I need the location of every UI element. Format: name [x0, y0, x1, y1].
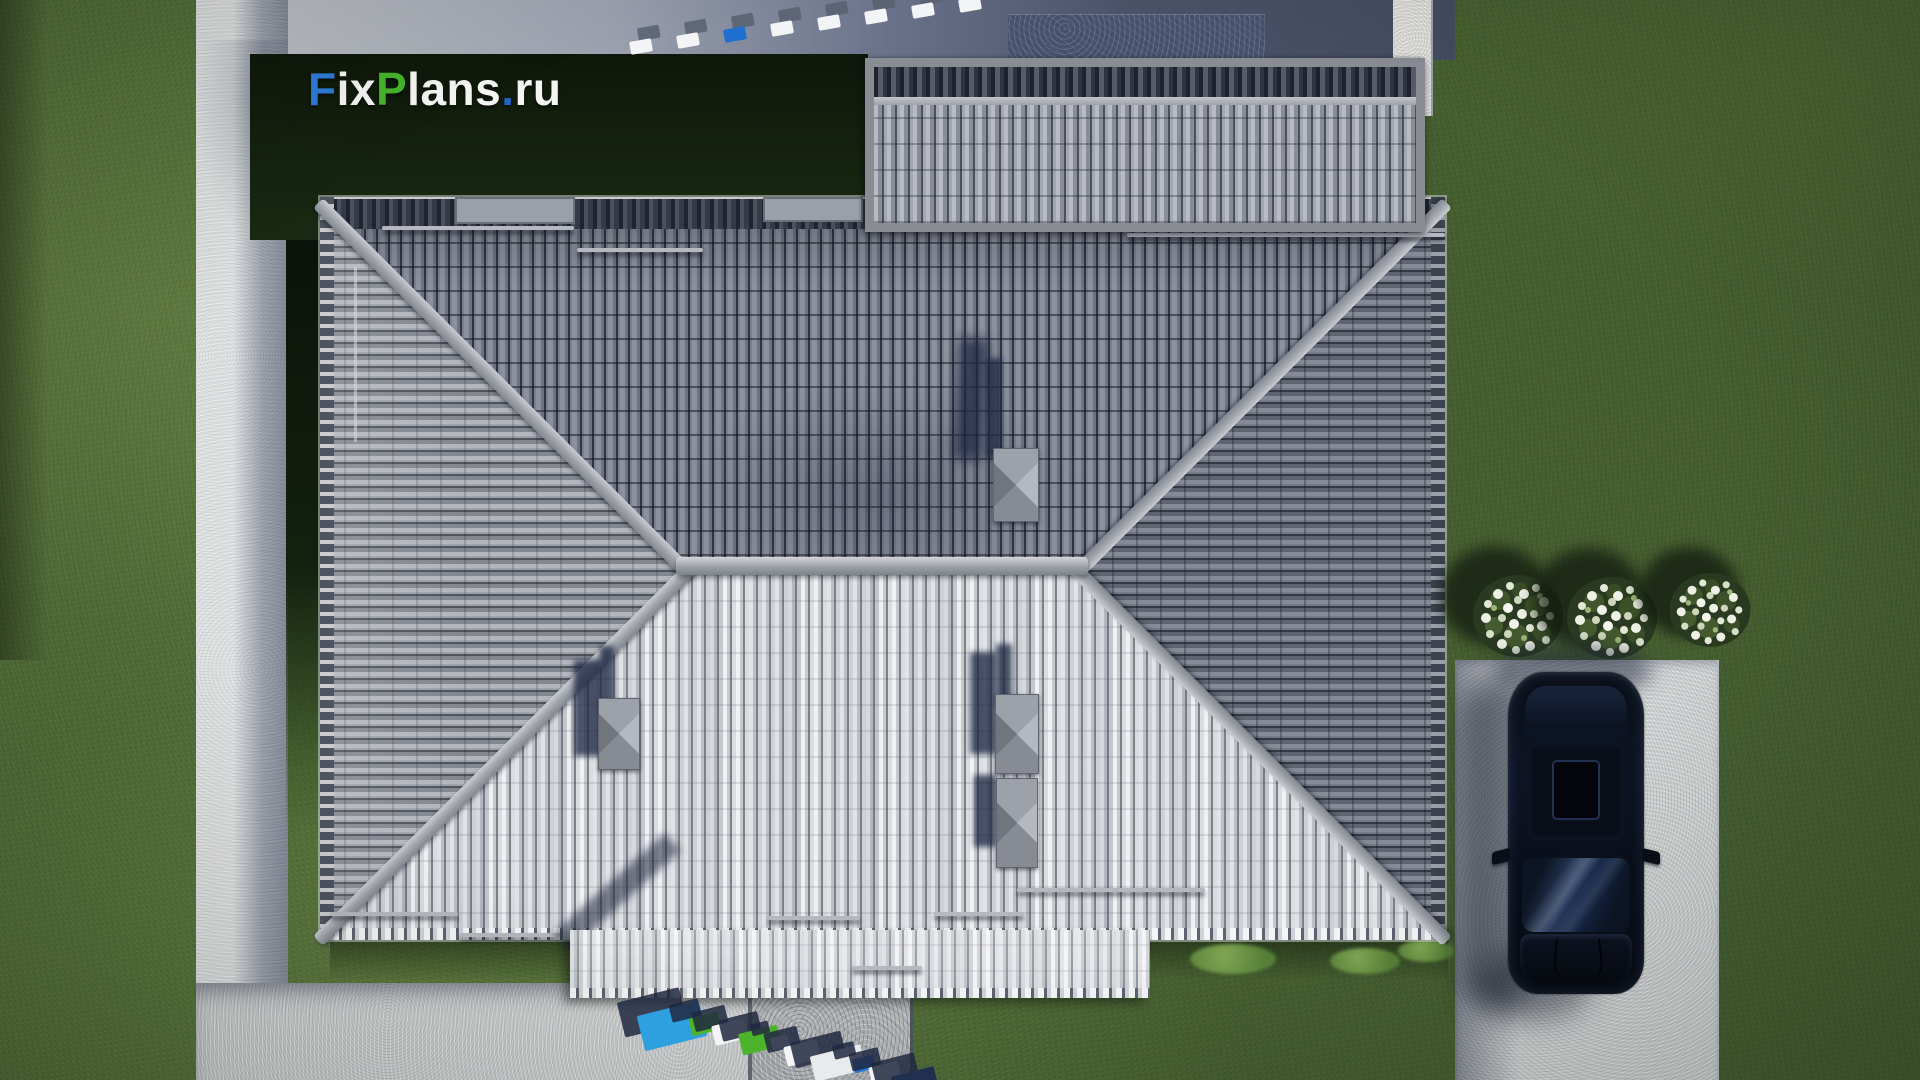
roof-bay-extension: [570, 930, 1150, 998]
snow-guard-rail: [852, 966, 922, 970]
shrub: [1398, 940, 1454, 962]
car-sunroof: [1552, 760, 1600, 820]
watermark-letter: .: [501, 63, 514, 115]
watermark-letter: lans: [407, 63, 501, 115]
roof-vent: [455, 197, 575, 224]
watermark-letter: P: [376, 63, 407, 115]
snow-guard-rail: [382, 226, 574, 230]
chimney-shadow: [600, 646, 614, 706]
snow-guard-rail: [768, 916, 860, 920]
secondary-roof-ridge: [874, 97, 1416, 105]
west-eave-tiles: [320, 197, 334, 940]
chimney-shadow: [974, 775, 996, 847]
secondary-roof: [865, 58, 1425, 232]
snow-guard-rail: [934, 912, 1024, 916]
chimney-shadow: [953, 337, 989, 460]
secondary-roof-tiles: [874, 105, 1416, 223]
car-rear-window: [1526, 686, 1626, 740]
roof-seam: [354, 267, 357, 442]
shrub: [1190, 944, 1276, 974]
secondary-roof-eave-tiles: [874, 67, 1416, 97]
snow-guard-rail: [330, 912, 458, 916]
aerial-house-render: FixPlans.ru: [0, 0, 1920, 1080]
flower-bush: [1656, 556, 1764, 664]
shaded-terrace: [1008, 14, 1265, 62]
snow-guard-rail: [1017, 888, 1205, 892]
snow-guard-rail: [460, 933, 560, 937]
chimney-shadow: [986, 358, 1002, 458]
fixplans-watermark-logo: FixPlans.ru: [308, 66, 562, 112]
roof-ridge-cap: [676, 557, 1088, 575]
chimney: [598, 698, 640, 770]
chimney: [993, 448, 1039, 522]
shrub: [1330, 948, 1400, 974]
roof-vent: [763, 197, 863, 222]
shaded-ground-band: [288, 0, 1455, 60]
car-windshield: [1522, 858, 1630, 932]
chimney: [996, 778, 1038, 868]
tree-shadow-left-edge: [0, 0, 48, 660]
car-mirror-left: [1492, 848, 1510, 865]
watermark-letter: ru: [515, 63, 562, 115]
chimney: [995, 694, 1039, 774]
car-hood: [1520, 934, 1632, 986]
chimney-shadow: [970, 652, 996, 754]
main-hip-roof: [320, 197, 1445, 940]
parked-suv-car: [1508, 672, 1644, 994]
snow-guard-rail: [1127, 233, 1445, 237]
watermark-letter: F: [308, 63, 337, 115]
east-eave-tiles: [1431, 197, 1445, 940]
lawn-light-patch: [1420, 0, 1920, 300]
watermark-letter: ix: [337, 63, 376, 115]
flower-bush-graphic: [1656, 556, 1764, 664]
snow-guard-rail: [577, 248, 703, 252]
